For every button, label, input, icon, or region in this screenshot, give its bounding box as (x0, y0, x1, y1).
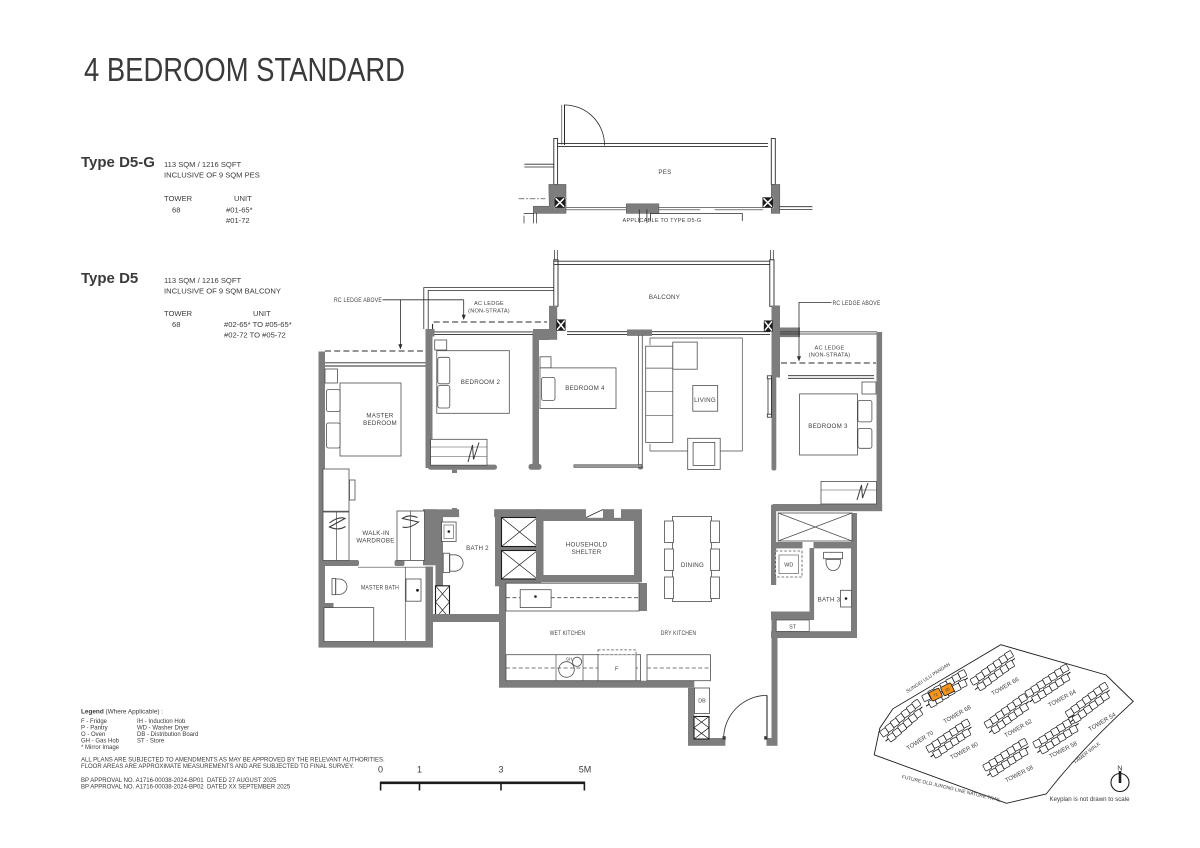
svg-text:FUTURE OLD JURONG LINE NATURE: FUTURE OLD JURONG LINE NATURE TRAIL (901, 774, 1002, 804)
svg-text:F - Fridge: F - Fridge (81, 719, 108, 725)
svg-text:F: F (615, 667, 619, 673)
svg-text:RC LEDGE ABOVE: RC LEDGE ABOVE (334, 297, 382, 304)
svg-text:TOWER 58: TOWER 58 (1005, 765, 1036, 785)
svg-text:BEDROOM 2: BEDROOM 2 (461, 379, 501, 386)
svg-text:BALCONY: BALCONY (649, 294, 680, 301)
svg-text:AC LEDGE: AC LEDGE (815, 345, 845, 351)
svg-text:LIVING: LIVING (694, 397, 716, 404)
svg-text:WET KITCHEN: WET KITCHEN (550, 630, 586, 637)
svg-text:DINING: DINING (681, 562, 704, 569)
svg-text:MASTER: MASTER (366, 413, 394, 420)
svg-text:O - Oven: O - Oven (81, 732, 105, 738)
svg-text:BATH 2: BATH 2 (466, 545, 489, 552)
svg-text:5M: 5M (579, 765, 592, 775)
svg-text:P - Pantry: P - Pantry (81, 726, 108, 732)
svg-text:N: N (1117, 764, 1122, 773)
svg-text:TOWER: TOWER (164, 309, 193, 318)
svg-text:BP APPROVAL NO. A1716-00038-20: BP APPROVAL NO. A1716-00038-2024-BP02 DA… (81, 785, 291, 791)
svg-text:SHELTER: SHELTER (572, 549, 602, 556)
svg-text:UNIT: UNIT (253, 309, 271, 318)
svg-text:68: 68 (172, 206, 180, 215)
svg-text:4 BEDROOM STANDARD: 4 BEDROOM STANDARD (84, 51, 405, 88)
svg-text:BEDROOM 4: BEDROOM 4 (565, 385, 605, 392)
svg-text:RC LEDGE ABOVE: RC LEDGE ABOVE (833, 300, 881, 307)
svg-text:BEDROOM 3: BEDROOM 3 (808, 423, 848, 430)
svg-text:INCLUSIVE OF 9 SQM PES: INCLUSIVE OF 9 SQM PES (164, 171, 260, 180)
svg-text:#02-65* TO #05-65*: #02-65* TO #05-65* (224, 320, 292, 329)
svg-text:Type D5-G: Type D5-G (81, 154, 155, 171)
svg-text:(NON-STRATA): (NON-STRATA) (468, 308, 510, 314)
svg-text:DB - Distribution Board: DB - Distribution Board (137, 732, 198, 738)
svg-text:Legend (Where Applicable) :: Legend (Where Applicable) : (81, 709, 163, 716)
svg-text:113 SQM / 1216 SQFT: 113 SQM / 1216 SQFT (164, 160, 241, 169)
svg-text:WD: WD (784, 563, 793, 569)
svg-text:Type D5: Type D5 (81, 270, 138, 287)
svg-text:INCLUSIVE OF 9 SQM BALCONY: INCLUSIVE OF 9 SQM BALCONY (164, 287, 281, 296)
svg-text:GH - Gas Hob: GH - Gas Hob (81, 739, 120, 745)
svg-text:1: 1 (417, 765, 422, 775)
svg-text:Keyplan is not drawn to scale: Keyplan is not drawn to scale (1050, 796, 1130, 803)
svg-text:#01-72: #01-72 (226, 216, 250, 225)
svg-text:BEDROOM: BEDROOM (363, 420, 397, 427)
svg-text:UNIT: UNIT (234, 194, 252, 203)
svg-text:WARDROBE: WARDROBE (356, 537, 394, 544)
svg-text:(NON-STRATA): (NON-STRATA) (809, 353, 851, 359)
svg-text:ALL PLANS ARE SUBJECTED TO AME: ALL PLANS ARE SUBJECTED TO AMENDMENTS AS… (81, 758, 385, 764)
svg-text:DRY KITCHEN: DRY KITCHEN (661, 630, 697, 637)
svg-text:MASTER BATH: MASTER BATH (361, 585, 399, 592)
svg-text:ST: ST (789, 625, 797, 631)
svg-text:* Mirror Image: * Mirror Image (81, 745, 120, 751)
svg-text:GH: GH (566, 657, 572, 662)
svg-text:#02-72 TO #05-72: #02-72 TO #05-72 (224, 331, 286, 340)
svg-text:TOWER: TOWER (164, 194, 193, 203)
svg-text:HOUSEHOLD: HOUSEHOLD (566, 542, 608, 549)
svg-text:WD - Washer Dryer: WD - Washer Dryer (137, 726, 189, 732)
svg-text:ST - Store: ST - Store (137, 739, 165, 745)
svg-text:68: 68 (172, 320, 180, 329)
svg-text:FLOOR AREAS ARE APPROXIMATE ME: FLOOR AREAS ARE APPROXIMATE MEASUREMENTS… (81, 764, 354, 770)
svg-text:DB: DB (698, 699, 706, 705)
svg-text:BATH 3: BATH 3 (818, 597, 841, 604)
svg-text:APPLICABLE TO TYPE D5-G: APPLICABLE TO TYPE D5-G (623, 218, 702, 224)
svg-text:3: 3 (498, 765, 503, 775)
svg-text:WALK-IN: WALK-IN (362, 530, 389, 537)
svg-text:#01-65*: #01-65* (226, 206, 253, 215)
svg-text:AC LEDGE: AC LEDGE (474, 301, 504, 307)
svg-text:PES: PES (658, 169, 671, 176)
svg-text:0: 0 (378, 765, 383, 775)
svg-text:BP APPROVAL NO. A1716-00038-20: BP APPROVAL NO. A1716-00038-2024-BP01 DA… (81, 778, 277, 784)
svg-text:IH - Induction Hob: IH - Induction Hob (137, 719, 186, 725)
svg-text:113 SQM / 1216 SQFT: 113 SQM / 1216 SQFT (164, 276, 241, 285)
